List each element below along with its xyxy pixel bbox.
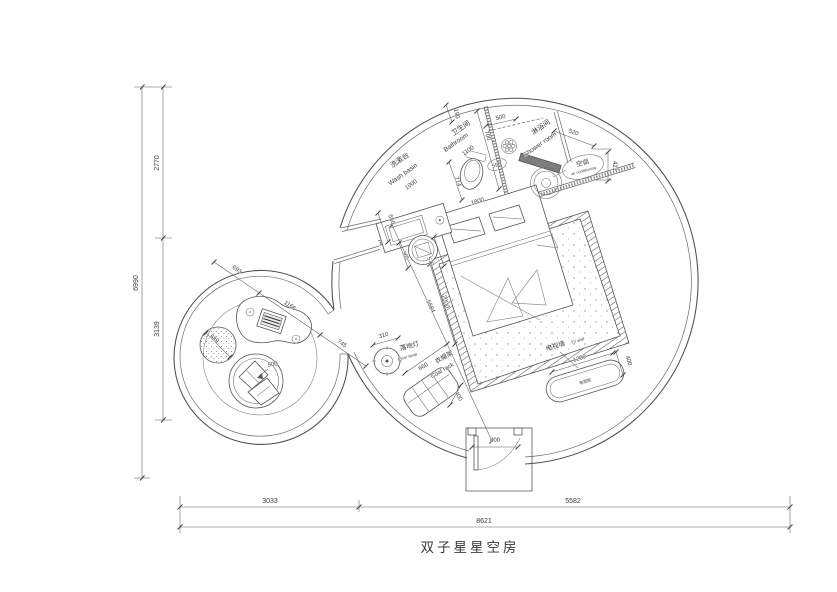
dim-bathroom-1100: 1100 <box>461 145 476 158</box>
label-floor-lamp-en: Floor lamp <box>397 351 418 361</box>
door-leaf <box>474 436 478 470</box>
shower-head-icon <box>502 139 517 154</box>
label-ac-cn: 空调 <box>575 157 590 169</box>
door-hinge-block <box>468 428 476 435</box>
dim-width-right: 5582 <box>565 498 581 505</box>
dim-lamp-310: 310 <box>378 332 390 341</box>
dim-door-800: 800 <box>490 438 501 444</box>
dim-height-top: 2770 <box>154 155 161 171</box>
label-ac-en: air conditioning <box>571 166 597 176</box>
dim-520: 520 <box>568 129 580 138</box>
floor-plan-page: 电视柜 <box>0 0 837 592</box>
label-shower-en: Shower room <box>522 131 558 159</box>
coat-rack <box>400 364 461 420</box>
dim-shower-590: 590 <box>491 161 502 169</box>
label-floor-lamp-cn: 落地灯 <box>399 338 421 352</box>
dim-width-left: 3033 <box>262 498 278 505</box>
dim-total-width: 8621 <box>476 518 492 525</box>
dim-421: 421 <box>611 161 617 172</box>
dim-washbasin-1000: 1000 <box>404 179 419 192</box>
door-hinge-block <box>514 428 522 435</box>
floor-plan-drawing: 电视柜 <box>0 0 837 592</box>
dim-height-mid: 3139 <box>154 321 161 337</box>
dim-190: 190 <box>452 108 460 120</box>
floor-lamp <box>372 346 402 376</box>
dim-745: 745 <box>336 339 348 350</box>
dim-5684: 5684 <box>424 299 435 314</box>
dim-total-height: 6990 <box>133 275 140 291</box>
page-title: 双子星星空房 <box>421 540 520 555</box>
dim-shower-500: 500 <box>495 114 507 122</box>
dim-tv-400: 400 <box>624 355 633 367</box>
